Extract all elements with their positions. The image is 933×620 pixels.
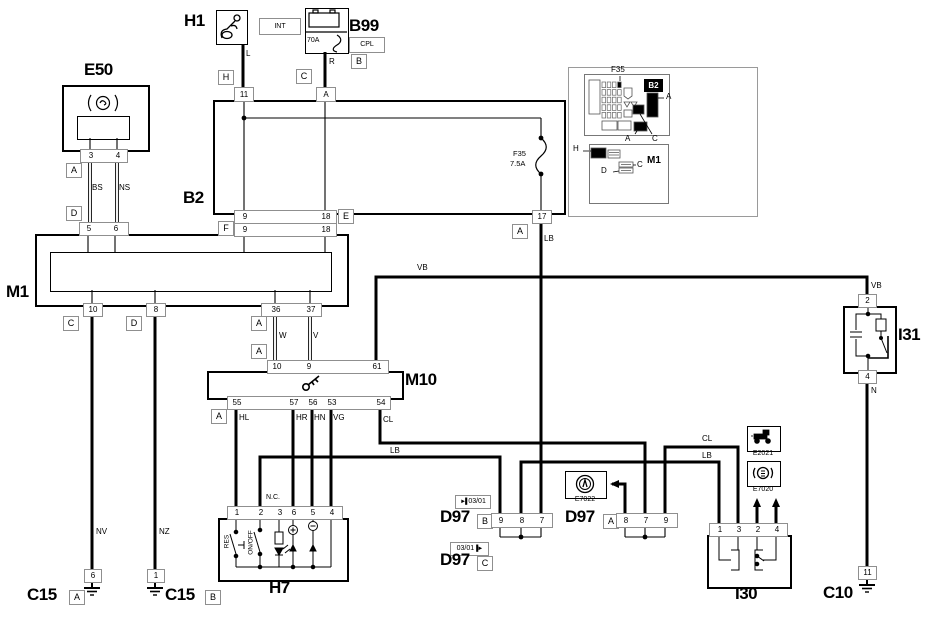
pin-10-m1: 10 (83, 303, 103, 317)
pin-number: 53 (328, 397, 337, 409)
pin-number: 18 (322, 211, 331, 223)
wire-label: HL (239, 413, 249, 422)
pin-number: 4 (330, 507, 334, 519)
pin-8-m1: 8 (146, 303, 166, 317)
wire-label: NV (96, 527, 107, 536)
label-e7020: E7020 (746, 486, 780, 493)
wiring-diagram: INT CPL ►▌03/01 03/01▐► B2 H1B99E50B2M1M… (0, 0, 933, 620)
int-badge: INT (259, 18, 301, 35)
b2-fuse-rating: 7.5A (510, 159, 525, 168)
pin-number: 6 (114, 223, 118, 235)
label-h1: H1 (184, 11, 205, 31)
h7-onoff-label: ON/OFF (248, 527, 255, 559)
pin-row-d97-b: 987 (491, 513, 553, 528)
pin-number: 8 (520, 514, 524, 527)
int-badge-label: INT (274, 23, 285, 30)
connector-b-b99: B (351, 54, 367, 69)
i31-box (843, 306, 897, 374)
wire-label: N (871, 386, 877, 395)
label-e2021: E2021 (746, 450, 780, 457)
connector-a-m10-top: A (251, 344, 267, 359)
wire-label: R (329, 57, 335, 66)
label-i31: I31 (898, 325, 920, 345)
pin-row-m1-f: 918 (234, 223, 337, 237)
junction-dot (519, 535, 524, 540)
pin-number: 3 (89, 150, 93, 162)
inset-a2-label: A (625, 134, 630, 143)
junction-dot (643, 535, 648, 540)
label-e50: E50 (84, 60, 113, 80)
inset-b2-tag-label: B2 (648, 81, 658, 90)
cpl-badge-label: CPL (360, 41, 374, 48)
label-c15-a: C15 (27, 585, 57, 605)
pin-number: 36 (272, 304, 281, 316)
wire-label: CL (383, 415, 393, 424)
wire-thick (612, 484, 625, 513)
wire-label: VG (333, 413, 345, 422)
arrow-to-e7020 (772, 498, 780, 507)
label-d97-b: D97 (440, 507, 470, 527)
pin-17-b2: 17 (532, 210, 552, 224)
b99-fuse-rating: 70A (307, 37, 319, 44)
connector-a-m1: A (251, 316, 267, 331)
label-b2: B2 (183, 188, 204, 208)
wire-label: NZ (159, 527, 170, 536)
label-c15-b: C15 (165, 585, 195, 605)
pin-1-c15b: 1 (147, 569, 165, 583)
i30-box (707, 535, 792, 589)
connector-e-b2: E (338, 209, 354, 224)
wire-label: LB (544, 234, 554, 243)
pin-number: 1 (235, 507, 239, 519)
pin-number: 9 (243, 211, 247, 223)
arrow-to-e7022 (610, 480, 619, 488)
wire-label: LB (390, 446, 400, 455)
connector-a-c15: A (69, 590, 85, 605)
pin-row-i30: 1324 (709, 523, 788, 537)
pin-number: 4 (775, 524, 779, 536)
e50-inner-box (77, 116, 130, 140)
wire-label: W (279, 331, 287, 340)
pin-6-c15a: 6 (84, 569, 102, 583)
pin-number: 57 (290, 397, 299, 409)
arrow-to-e2021 (753, 498, 761, 507)
wire-label: HN (314, 413, 326, 422)
pin-number: 9 (307, 361, 311, 373)
pin-number: 8 (624, 514, 628, 527)
pin-row-b2-e: 918 (234, 210, 337, 224)
pin-number: 18 (322, 224, 331, 236)
label-d97-a: D97 (565, 507, 595, 527)
cpl-badge: CPL (349, 37, 385, 53)
pin-number: 3 (737, 524, 741, 536)
pin-number: 61 (373, 361, 382, 373)
wire-label: BS (92, 183, 103, 192)
e7020-box (747, 461, 781, 487)
pin-2-i31: 2 (858, 294, 877, 308)
pin-number: 5 (87, 223, 91, 235)
b2-fuse-name: F35 (513, 149, 526, 158)
pin-number: 7 (540, 514, 544, 527)
inset-c1-label: C (652, 134, 658, 143)
pin-number: 1 (718, 524, 722, 536)
inset-h-label: H (573, 144, 579, 153)
pin-number: 2 (259, 507, 263, 519)
connector-a-m10-bottom: A (211, 409, 227, 424)
pin-row-d97-a: 879 (616, 513, 678, 528)
inset-f35-label: F35 (611, 65, 625, 74)
pin-row-m1-d: 56 (79, 222, 129, 236)
h1-box (216, 10, 248, 45)
connector-c-d97: C (477, 556, 493, 571)
h7-nc-label: N.C. (266, 494, 280, 501)
label-h7: H7 (269, 578, 290, 598)
e2021-box (747, 426, 781, 452)
pin-number: 10 (273, 361, 282, 373)
wire-label: CL (702, 434, 712, 443)
h7-res-label: RES (224, 529, 231, 555)
pin-number: 7 (644, 514, 648, 527)
label-i30: I30 (735, 584, 757, 604)
pin-number: 3 (278, 507, 282, 519)
connector-d-m1: D (126, 316, 142, 331)
b99-box (305, 8, 349, 54)
pin-number: 56 (309, 397, 318, 409)
pin-row-m1-a: 3637 (261, 303, 322, 317)
pin-number: 9 (499, 514, 503, 527)
wire-label: L (246, 49, 250, 58)
pin-number: 6 (292, 507, 296, 519)
inset-d-label: D (601, 166, 607, 175)
wire-label: VB (871, 281, 882, 290)
wire-label: NS (119, 183, 130, 192)
connector-b-c15: B (205, 590, 221, 605)
d97b-date-text: 03/01 (468, 498, 486, 505)
connector-h-h1: H (218, 70, 234, 85)
label-m10: M10 (405, 370, 437, 390)
pin-number: 9 (243, 224, 247, 236)
connector-d-e50: D (66, 206, 82, 221)
pin-row-m10-top: 10961 (267, 360, 389, 374)
wire-label: V (313, 331, 318, 340)
label-b99: B99 (349, 16, 379, 36)
m1-inner-box (50, 252, 332, 292)
wire-thick (376, 277, 867, 360)
connector-c-b99: C (296, 69, 312, 84)
pin-11-c10: 11 (858, 566, 877, 580)
connector-f-m1: F (218, 221, 234, 236)
label-e7022: E7022 (565, 496, 605, 503)
connector-c-m1: C (63, 316, 79, 331)
connector-a-b2-17: A (512, 224, 528, 239)
pin-number: 9 (664, 514, 668, 527)
wire-label: LB (702, 451, 712, 460)
pin-number: 55 (233, 397, 242, 409)
pin-4-i31: 4 (858, 370, 877, 384)
label-m1: M1 (6, 282, 29, 302)
pin-11-b2-top: 11 (234, 87, 254, 102)
inset-m1-label: M1 (647, 155, 661, 166)
pin-row-h7: 123654 (227, 506, 343, 520)
pin-number: 2 (756, 524, 760, 536)
e7022-box (565, 471, 607, 499)
inset-a1-label: A (666, 92, 671, 101)
label-c10: C10 (823, 583, 853, 603)
wire-label: HR (296, 413, 308, 422)
pin-number: 4 (116, 150, 120, 162)
wire-label: VB (417, 263, 428, 272)
inset-b2-tag: B2 (644, 79, 663, 92)
inset-c2-label: C (637, 160, 643, 169)
pin-number: 5 (311, 507, 315, 519)
h7-box (218, 518, 349, 582)
after-date-icon: ▐► (474, 546, 482, 552)
pin-number: 37 (307, 304, 316, 316)
pin-number: 54 (377, 397, 386, 409)
pin-row-m10-bottom: 5557565354 (227, 396, 391, 410)
connector-a-e50: A (66, 163, 82, 178)
label-d97-c: D97 (440, 550, 470, 570)
pin-a-b2-top: A (316, 87, 336, 102)
pin-row-e50: 34 (80, 149, 128, 163)
